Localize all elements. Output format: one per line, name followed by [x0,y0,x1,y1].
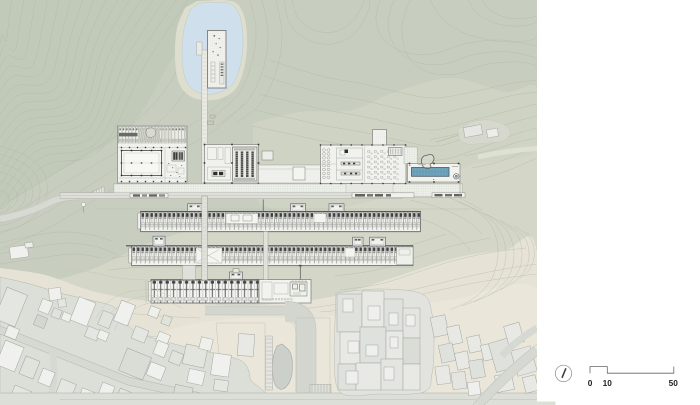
svg-text:10: 10 [603,378,613,388]
svg-text:50: 50 [669,378,679,388]
svg-text:0: 0 [588,378,593,388]
